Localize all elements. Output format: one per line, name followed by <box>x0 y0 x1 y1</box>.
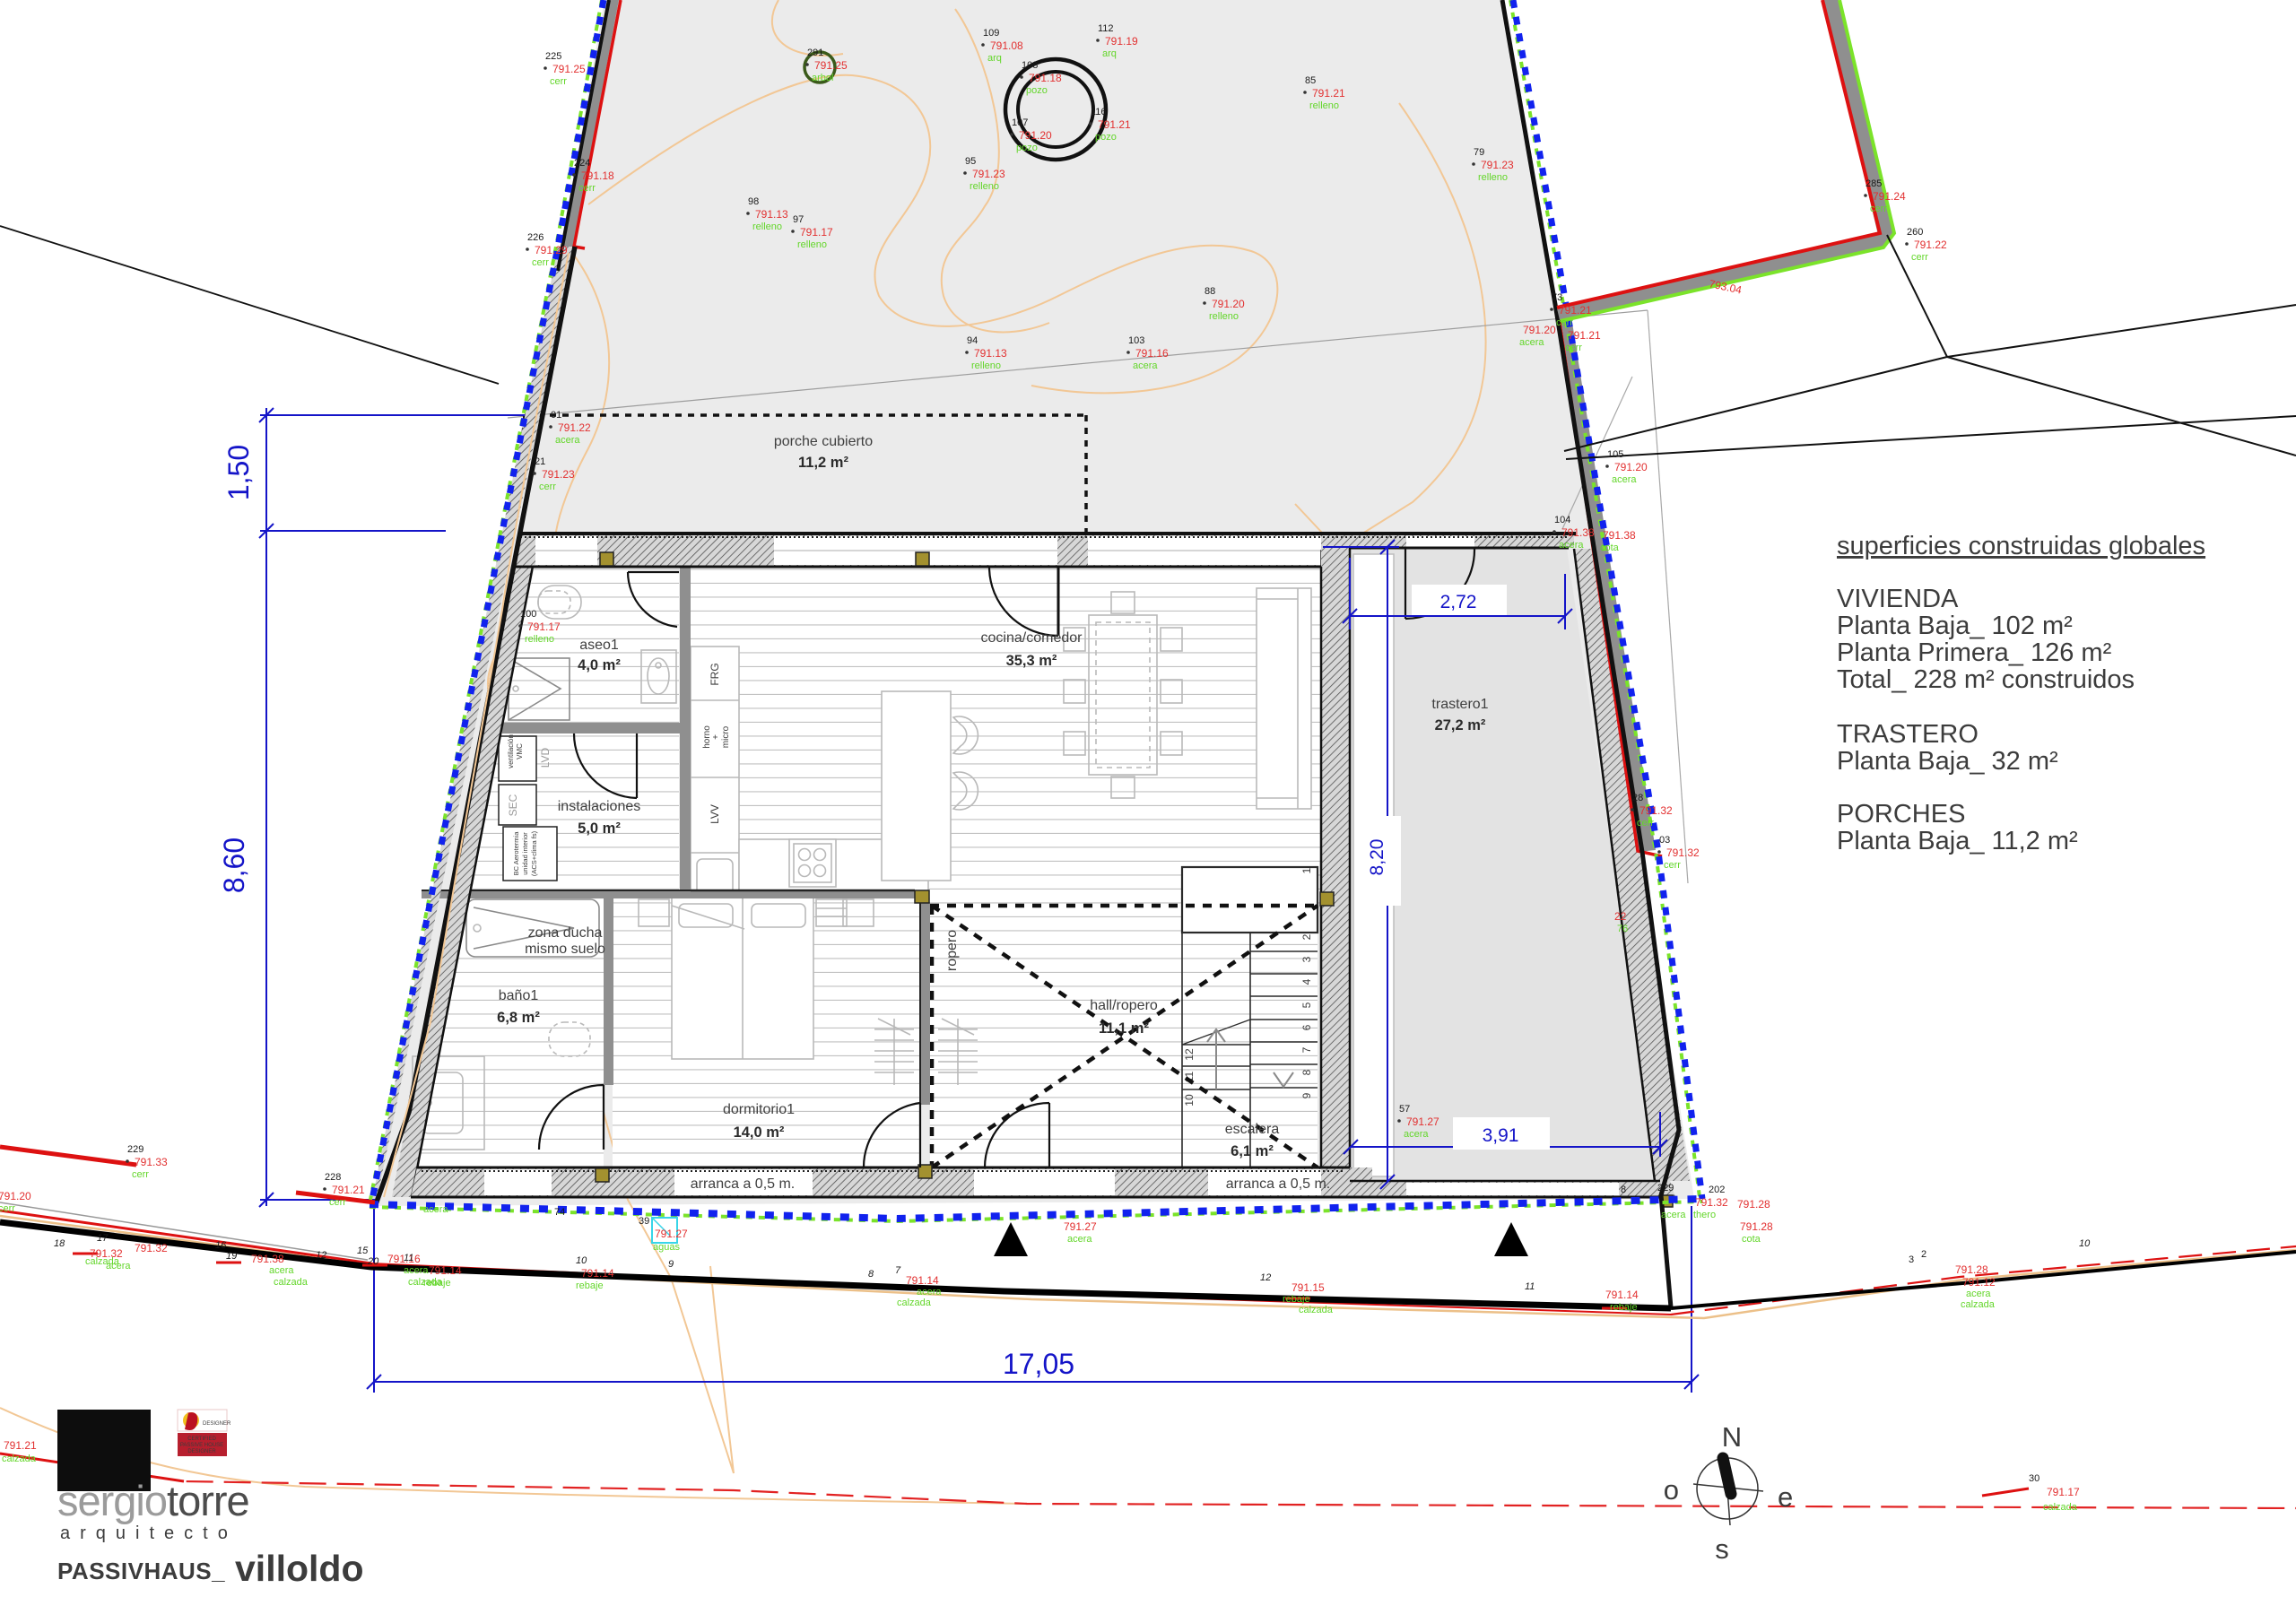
svg-text:rebaje: rebaje <box>576 1280 604 1291</box>
svg-text:cocina/comedor: cocina/comedor <box>981 630 1083 646</box>
svg-text:Planta Baja_ 102 m²: Planta Baja_ 102 m² <box>1837 612 2073 640</box>
svg-text:11: 11 <box>1525 1281 1535 1292</box>
svg-text:5,0 m²: 5,0 m² <box>578 820 621 837</box>
svg-text:791.15: 791.15 <box>1291 1281 1325 1294</box>
svg-text:calzada: calzada <box>274 1277 309 1288</box>
svg-text:arranca a 0,5 m.: arranca a 0,5 m. <box>691 1176 796 1192</box>
svg-text:DESIGNER: DESIGNER <box>203 1421 231 1427</box>
svg-text:escalera: escalera <box>1225 1122 1280 1137</box>
svg-text:12: 12 <box>1183 1048 1196 1061</box>
svg-text:baño1: baño1 <box>499 988 539 1003</box>
svg-text:4,0 m²: 4,0 m² <box>578 657 621 673</box>
svg-text:791.17: 791.17 <box>527 621 561 633</box>
svg-text:791.21: 791.21 <box>332 1184 365 1196</box>
svg-text:98: 98 <box>748 196 759 207</box>
svg-text:6,8 m²: 6,8 m² <box>497 1010 540 1026</box>
svg-text:cerr: cerr <box>1556 317 1573 328</box>
svg-text:17: 17 <box>97 1233 109 1244</box>
svg-text:74: 74 <box>554 1207 565 1218</box>
svg-text:relleno: relleno <box>970 181 999 192</box>
svg-text:trastero1: trastero1 <box>1431 697 1488 712</box>
svg-text:calzada: calzada <box>2 1454 37 1464</box>
svg-text:unidad interior: unidad interior <box>521 832 529 875</box>
svg-text:cerr: cerr <box>532 257 549 268</box>
svg-text:acera: acera <box>1612 474 1637 485</box>
svg-text:10: 10 <box>2079 1238 2091 1249</box>
svg-text:791.23: 791.23 <box>1481 159 1514 171</box>
svg-text:97: 97 <box>793 214 804 225</box>
svg-text:arquitecto: arquitecto <box>60 1523 238 1543</box>
svg-text:DESIGNER: DESIGNER <box>187 1449 216 1454</box>
svg-text:112: 112 <box>1098 23 1114 34</box>
svg-text:229: 229 <box>1657 1183 1674 1193</box>
svg-text:dormitorio1: dormitorio1 <box>723 1102 795 1117</box>
svg-text:mismo suelo: mismo suelo <box>525 942 605 957</box>
svg-text:791.28: 791.28 <box>1740 1220 1773 1233</box>
svg-text:relleno: relleno <box>1478 172 1508 183</box>
svg-text:107: 107 <box>1012 117 1028 128</box>
svg-text:cerr: cerr <box>1637 818 1654 829</box>
svg-text:acera: acera <box>1133 360 1158 371</box>
svg-text:11,2 m²: 11,2 m² <box>798 455 848 471</box>
svg-text:2: 2 <box>1921 1249 1926 1260</box>
svg-text:calzada: calzada <box>85 1256 120 1267</box>
svg-text:224: 224 <box>574 158 590 169</box>
svg-text:791.32: 791.32 <box>1695 1196 1728 1209</box>
svg-text:2,72: 2,72 <box>1440 592 1477 612</box>
svg-text:micro: micro <box>721 725 731 748</box>
svg-text:791.22: 791.22 <box>558 421 591 434</box>
svg-text:791.14: 791.14 <box>581 1267 614 1280</box>
svg-text:4: 4 <box>1300 978 1313 985</box>
svg-text:3: 3 <box>1300 956 1313 962</box>
svg-text:calzada: calzada <box>2043 1502 2078 1513</box>
svg-text:aseo1: aseo1 <box>579 638 619 653</box>
svg-text:791.17: 791.17 <box>2047 1486 2080 1498</box>
svg-text:cerr: cerr <box>0 1203 15 1214</box>
svg-text:arranca a 0,5 m.: arranca a 0,5 m. <box>1226 1176 1331 1192</box>
svg-text:01: 01 <box>551 410 561 421</box>
svg-text:cota: cota <box>1742 1234 1761 1245</box>
svg-text:791.21: 791.21 <box>1312 87 1345 100</box>
svg-text:cerr: cerr <box>1565 343 1582 353</box>
svg-text:791.23: 791.23 <box>972 168 1005 180</box>
svg-text:791.18: 791.18 <box>581 169 614 182</box>
svg-text:cerr: cerr <box>132 1169 149 1180</box>
svg-text:9: 9 <box>668 1259 674 1270</box>
svg-text:791.25: 791.25 <box>814 59 848 72</box>
svg-text:acera: acera <box>555 435 580 446</box>
svg-text:791.18: 791.18 <box>1029 72 1062 84</box>
svg-text:ropero: ropero <box>944 930 960 971</box>
svg-text:8: 8 <box>868 1269 874 1280</box>
svg-text:pozo: pozo <box>1026 85 1048 96</box>
svg-text:VMC: VMC <box>516 743 524 759</box>
svg-text:5: 5 <box>1300 1002 1313 1008</box>
svg-text:VIVIENDA: VIVIENDA <box>1837 585 1959 613</box>
svg-text:10: 10 <box>1183 1094 1196 1107</box>
svg-text:TRASTERO: TRASTERO <box>1837 720 1979 749</box>
svg-text:calzada: calzada <box>1299 1305 1334 1315</box>
svg-text:109: 109 <box>983 28 999 39</box>
svg-text:Planta Baja_ 11,2 m²: Planta Baja_ 11,2 m² <box>1837 827 2078 855</box>
svg-text:N: N <box>1722 1421 1742 1453</box>
svg-text:791.22: 791.22 <box>1914 239 1947 251</box>
svg-text:ventilación: ventilación <box>507 734 515 768</box>
svg-text:791.25: 791.25 <box>552 63 586 75</box>
svg-text:LVD: LVD <box>539 747 552 768</box>
svg-text:791.12: 791.12 <box>1962 1276 1996 1289</box>
svg-text:11,1 m²: 11,1 m² <box>1099 1020 1149 1037</box>
svg-text:104: 104 <box>1554 515 1570 525</box>
svg-text:791.13: 791.13 <box>755 208 788 221</box>
svg-text:relleno: relleno <box>1309 100 1339 111</box>
svg-text:791.38: 791.38 <box>1603 529 1636 542</box>
svg-text:3: 3 <box>1909 1254 1914 1265</box>
svg-text:18: 18 <box>54 1238 65 1249</box>
svg-text:11: 11 <box>404 1253 413 1263</box>
svg-text:28: 28 <box>1632 793 1643 803</box>
svg-text:94: 94 <box>967 335 978 346</box>
svg-text:cerr: cerr <box>539 482 556 492</box>
svg-text:225: 225 <box>545 51 561 62</box>
svg-text:2: 2 <box>1300 933 1313 940</box>
svg-text:791.27: 791.27 <box>655 1228 688 1240</box>
svg-text:1,50: 1,50 <box>222 445 255 500</box>
svg-text:85: 85 <box>1305 75 1316 86</box>
svg-text:8,60: 8,60 <box>218 838 250 893</box>
svg-text:acera: acera <box>1966 1289 1991 1299</box>
svg-text:PASSIVHAUS_: PASSIVHAUS_ <box>57 1558 225 1584</box>
svg-text:20: 20 <box>367 1256 379 1267</box>
svg-text:Planta Primera_ 126 m²: Planta Primera_ 126 m² <box>1837 638 2112 667</box>
svg-text:791.21: 791.21 <box>1559 304 1592 317</box>
svg-text:791.29: 791.29 <box>535 244 568 256</box>
svg-text:8: 8 <box>1621 1185 1626 1195</box>
svg-text:rebaje: rebaje <box>1610 1302 1638 1313</box>
svg-text:acera: acera <box>917 1287 942 1298</box>
svg-text:791.20: 791.20 <box>1212 298 1245 310</box>
svg-text:791.20: 791.20 <box>0 1190 31 1202</box>
svg-text:229: 229 <box>127 1144 143 1155</box>
svg-text:39: 39 <box>639 1216 649 1227</box>
svg-text:791.14: 791.14 <box>1605 1289 1639 1301</box>
svg-text:9: 9 <box>1300 1092 1313 1098</box>
svg-text:cerr: cerr <box>329 1197 346 1208</box>
svg-text:202: 202 <box>1709 1185 1725 1195</box>
svg-text:791.13: 791.13 <box>974 347 1007 360</box>
svg-text:228: 228 <box>325 1172 341 1183</box>
svg-text:rebaje: rebaje <box>1283 1294 1310 1305</box>
svg-text:BC Aerotermia: BC Aerotermia <box>512 831 520 876</box>
svg-text:108: 108 <box>1022 60 1038 71</box>
svg-text:cerr: cerr <box>1870 204 1887 214</box>
svg-text:acera: acera <box>269 1265 294 1276</box>
svg-text:791.16: 791.16 <box>1135 347 1169 360</box>
svg-text:791.27: 791.27 <box>1064 1220 1097 1233</box>
svg-text:791.23: 791.23 <box>542 468 575 481</box>
svg-text:Total_ 228 m² construidos: Total_ 228 m² construidos <box>1837 665 2135 694</box>
svg-text:791.19: 791.19 <box>1105 35 1138 48</box>
svg-text:8,20: 8,20 <box>1367 839 1387 876</box>
svg-text:73: 73 <box>1552 292 1562 303</box>
svg-text:PASSIVE HOUSE: PASSIVE HOUSE <box>180 1443 223 1448</box>
svg-text:pozo: pozo <box>1016 143 1038 153</box>
svg-text:791.33: 791.33 <box>135 1156 168 1168</box>
svg-text:791.28: 791.28 <box>1737 1198 1770 1211</box>
svg-text:cerr: cerr <box>550 76 567 87</box>
svg-text:27,2 m²: 27,2 m² <box>1435 717 1486 733</box>
svg-text:14,0 m²: 14,0 m² <box>734 1124 785 1141</box>
svg-text:100: 100 <box>520 609 536 620</box>
svg-text:relleno: relleno <box>752 221 782 232</box>
svg-text:17,05: 17,05 <box>1003 1348 1074 1380</box>
svg-text:LVV: LVV <box>709 804 721 824</box>
svg-text:791.21: 791.21 <box>1098 118 1131 131</box>
svg-text:16: 16 <box>215 1240 227 1251</box>
svg-text:8: 8 <box>1300 1069 1313 1075</box>
svg-text:15: 15 <box>357 1245 369 1256</box>
svg-text:791.20: 791.20 <box>1523 324 1556 336</box>
svg-text:+: + <box>711 734 721 740</box>
svg-text:1: 1 <box>1300 867 1313 873</box>
svg-text:791.32: 791.32 <box>1666 846 1700 859</box>
svg-text:arbol: arbol <box>812 73 833 83</box>
svg-text:21: 21 <box>535 456 545 467</box>
svg-text:thero: thero <box>1693 1210 1716 1220</box>
svg-text:791.17: 791.17 <box>800 226 833 239</box>
svg-text:CERTIFIED: CERTIFIED <box>187 1436 216 1442</box>
svg-text:03: 03 <box>1659 835 1670 846</box>
svg-text:relleno: relleno <box>1209 311 1239 322</box>
svg-text:19: 19 <box>226 1251 237 1262</box>
svg-text:relleno: relleno <box>797 239 827 250</box>
svg-text:12: 12 <box>1260 1272 1271 1283</box>
svg-text:88: 88 <box>1205 286 1215 297</box>
svg-text:791.32: 791.32 <box>135 1242 168 1254</box>
svg-text:791.14: 791.14 <box>429 1264 462 1277</box>
svg-text:arq: arq <box>987 53 1002 64</box>
svg-text:10: 10 <box>576 1255 587 1266</box>
svg-text:acera: acera <box>1519 337 1544 348</box>
svg-text:calzada: calzada <box>1961 1299 1996 1310</box>
svg-text:Planta Baja_ 32 m²: Planta Baja_ 32 m² <box>1837 747 2058 776</box>
svg-text:arq: arq <box>1102 48 1117 59</box>
svg-text:95: 95 <box>965 156 976 167</box>
svg-text:116: 116 <box>1091 107 1107 117</box>
svg-text:7: 7 <box>1300 1046 1313 1053</box>
svg-text:791.38: 791.38 <box>1561 526 1595 539</box>
svg-text:(ACS+clima fs): (ACS+clima fs) <box>530 830 538 876</box>
svg-text:acera: acera <box>1559 540 1584 551</box>
svg-text:226: 226 <box>527 232 544 243</box>
svg-text:791.32: 791.32 <box>1639 804 1673 817</box>
svg-text:35,3 m²: 35,3 m² <box>1006 653 1057 669</box>
svg-text:79: 79 <box>1474 147 1484 158</box>
svg-text:791.08: 791.08 <box>990 39 1023 52</box>
svg-text:cota: cota <box>1600 542 1620 553</box>
svg-text:3,91: 3,91 <box>1483 1125 1519 1146</box>
svg-text:o: o <box>1664 1474 1679 1506</box>
svg-text:acera: acera <box>1404 1129 1429 1140</box>
svg-text:791.38: 791.38 <box>251 1253 284 1265</box>
svg-text:6,1 m²: 6,1 m² <box>1231 1143 1274 1159</box>
svg-text:791.21: 791.21 <box>1568 329 1601 342</box>
svg-text:7: 7 <box>895 1265 901 1276</box>
svg-text:791.20: 791.20 <box>1614 461 1648 473</box>
svg-text:291: 291 <box>807 48 823 58</box>
svg-text:instalaciones: instalaciones <box>558 799 641 814</box>
svg-text:cerr: cerr <box>578 183 596 194</box>
svg-text:SEC: SEC <box>507 794 519 816</box>
svg-text:zona ducha: zona ducha <box>528 925 603 941</box>
svg-text:pozo: pozo <box>1095 132 1117 143</box>
svg-text:57: 57 <box>1399 1104 1410 1115</box>
svg-text:30: 30 <box>2029 1473 2039 1484</box>
svg-text:cerr: cerr <box>1911 252 1928 263</box>
svg-text:acera: acera <box>1067 1234 1092 1245</box>
svg-text:PORCHES: PORCHES <box>1837 800 1965 829</box>
svg-text:superficies construidas global: superficies construidas globales <box>1837 532 2205 560</box>
svg-text:12: 12 <box>316 1250 326 1261</box>
svg-text:285: 285 <box>1865 178 1882 189</box>
svg-text:791.21: 791.21 <box>4 1439 37 1452</box>
svg-text:791.28: 791.28 <box>1955 1263 1988 1276</box>
svg-text:260: 260 <box>1907 227 1923 238</box>
svg-text:hall/ropero: hall/ropero <box>1090 998 1158 1013</box>
svg-text:s: s <box>1715 1533 1729 1565</box>
svg-text:rebaje: rebaje <box>423 1278 451 1289</box>
svg-text:acera: acera <box>423 1204 448 1215</box>
svg-text:acera: acera <box>404 1265 429 1276</box>
svg-text:sergiotorre: sergiotorre <box>57 1477 249 1524</box>
svg-text:791.27: 791.27 <box>1406 1115 1439 1128</box>
svg-text:e: e <box>1778 1481 1793 1513</box>
svg-text:villoldo: villoldo <box>235 1548 364 1589</box>
svg-text:aguas: aguas <box>653 1242 680 1253</box>
svg-text:cerr: cerr <box>1664 860 1681 871</box>
svg-text:791.20: 791.20 <box>1019 129 1052 142</box>
svg-text:calzada: calzada <box>897 1298 932 1308</box>
svg-text:porche cubierto: porche cubierto <box>774 434 873 449</box>
svg-text:6: 6 <box>1300 1024 1313 1030</box>
svg-text:FRG: FRG <box>709 663 721 685</box>
svg-text:22: 22 <box>1614 910 1627 923</box>
svg-text:relleno: relleno <box>971 360 1001 371</box>
svg-text:791.14: 791.14 <box>906 1274 939 1287</box>
svg-text:791.24: 791.24 <box>1873 190 1906 203</box>
svg-text:105: 105 <box>1607 449 1623 460</box>
svg-text:103: 103 <box>1128 335 1144 346</box>
svg-text:relleno: relleno <box>525 634 554 645</box>
svg-text:76: 76 <box>1617 924 1628 934</box>
svg-text:acera: acera <box>1661 1210 1686 1220</box>
